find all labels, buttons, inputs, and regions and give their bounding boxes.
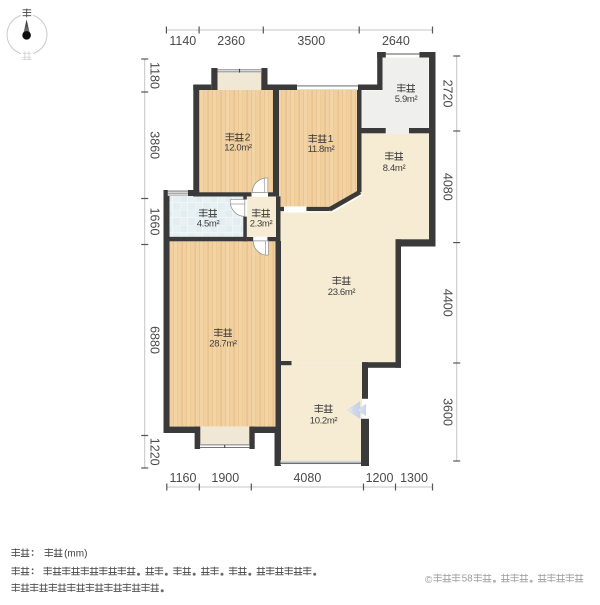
svg-text:1200: 1200 <box>366 471 394 485</box>
svg-text:1140: 1140 <box>169 34 196 48</box>
svg-text:1220: 1220 <box>148 438 162 466</box>
svg-text:8.4m²: 8.4m² <box>383 163 406 174</box>
svg-text:2640: 2640 <box>382 34 410 48</box>
svg-text:3600: 3600 <box>441 398 455 426</box>
svg-text:4400: 4400 <box>441 289 455 317</box>
svg-text:11.8m²: 11.8m² <box>308 144 335 155</box>
svg-text:2.3m²: 2.3m² <box>250 218 273 229</box>
svg-text:3860: 3860 <box>148 131 162 159</box>
svg-text:23.6m²: 23.6m² <box>328 287 356 298</box>
svg-text:©: © <box>425 575 433 586</box>
svg-text:1660: 1660 <box>148 208 162 236</box>
svg-text:1160: 1160 <box>170 471 197 485</box>
svg-text:28.7m²: 28.7m² <box>209 338 237 349</box>
svg-text:10.2m²: 10.2m² <box>310 415 338 426</box>
svg-text:1900: 1900 <box>211 471 239 485</box>
svg-text:4080: 4080 <box>441 173 455 201</box>
svg-text:58: 58 <box>462 574 474 585</box>
svg-text:4.5m²: 4.5m² <box>197 218 220 229</box>
svg-text:5.9m²: 5.9m² <box>395 94 418 105</box>
svg-text:4080: 4080 <box>293 471 321 485</box>
svg-text:6880: 6880 <box>148 326 162 354</box>
svg-text:2360: 2360 <box>217 34 245 48</box>
svg-text:1180: 1180 <box>148 62 162 89</box>
svg-text:3500: 3500 <box>297 34 325 48</box>
svg-text:1300: 1300 <box>400 471 428 485</box>
svg-text:2720: 2720 <box>441 80 455 108</box>
svg-text:(mm): (mm) <box>64 548 87 559</box>
svg-text:12.0m²: 12.0m² <box>224 142 252 153</box>
